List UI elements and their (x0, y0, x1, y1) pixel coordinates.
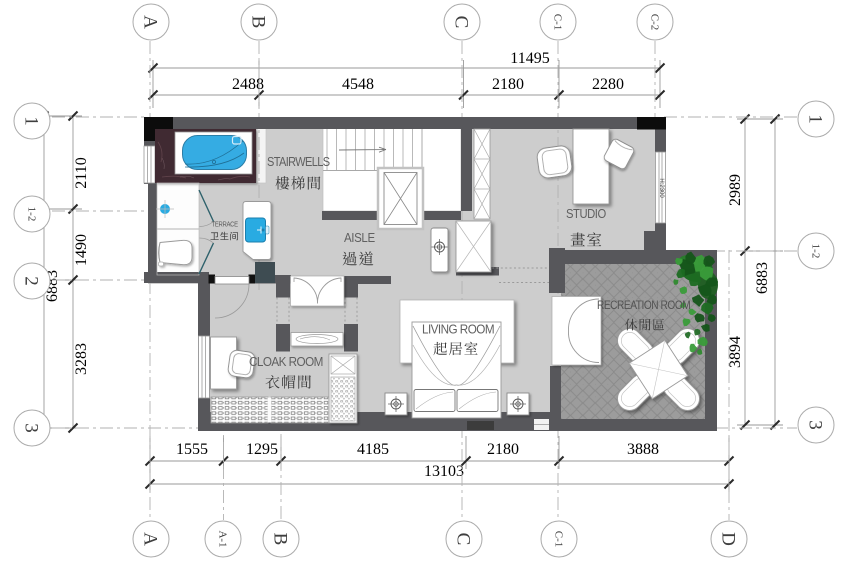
svg-text:B: B (270, 533, 291, 546)
svg-text:2280: 2280 (592, 76, 624, 93)
svg-text:A: A (140, 532, 161, 546)
svg-text:2180: 2180 (492, 76, 524, 93)
svg-text:3: 3 (805, 420, 826, 430)
svg-text:3894: 3894 (727, 336, 744, 368)
svg-text:RECREATION ROOM: RECREATION ROOM (597, 299, 691, 312)
svg-text:4185: 4185 (357, 441, 389, 458)
svg-text:1490: 1490 (73, 234, 90, 266)
svg-text:1: 1 (21, 116, 42, 126)
svg-text:4548: 4548 (342, 76, 374, 93)
svg-text:2989: 2989 (727, 174, 744, 206)
svg-text:1-2: 1-2 (25, 207, 37, 222)
svg-text:2: 2 (21, 276, 42, 286)
svg-text:C-1: C-1 (552, 531, 564, 548)
svg-text:1-2: 1-2 (809, 244, 821, 259)
svg-text:13103: 13103 (424, 463, 464, 480)
svg-text:C-2: C-2 (648, 14, 660, 31)
svg-text:C: C (453, 533, 474, 546)
svg-text:2180: 2180 (487, 441, 519, 458)
svg-text:A: A (140, 15, 161, 29)
svg-text:3: 3 (21, 423, 42, 433)
svg-text:STUDIO: STUDIO (566, 206, 606, 221)
svg-text:11495: 11495 (510, 50, 549, 67)
svg-text:LIVING ROOM: LIVING ROOM (422, 322, 494, 337)
svg-text:1295: 1295 (246, 441, 278, 458)
svg-text:AISLE: AISLE (344, 231, 375, 246)
svg-text:CLOAK ROOM: CLOAK ROOM (249, 354, 323, 369)
svg-text:C: C (451, 16, 472, 29)
svg-text:D: D (718, 532, 739, 546)
svg-text:STAIRWELLS: STAIRWELLS (267, 155, 330, 169)
svg-text:H:2300: H:2300 (658, 178, 664, 198)
svg-text:B: B (248, 16, 269, 29)
svg-text:C-1: C-1 (551, 14, 563, 31)
svg-text:1: 1 (805, 114, 826, 124)
svg-text:A-1: A-1 (216, 530, 228, 547)
svg-text:3888: 3888 (627, 441, 659, 458)
svg-text:3283: 3283 (73, 343, 90, 375)
svg-text:1555: 1555 (176, 441, 208, 458)
svg-text:6883: 6883 (754, 262, 771, 294)
svg-text:2110: 2110 (73, 157, 90, 188)
svg-text:TERRACE: TERRACE (212, 221, 239, 229)
